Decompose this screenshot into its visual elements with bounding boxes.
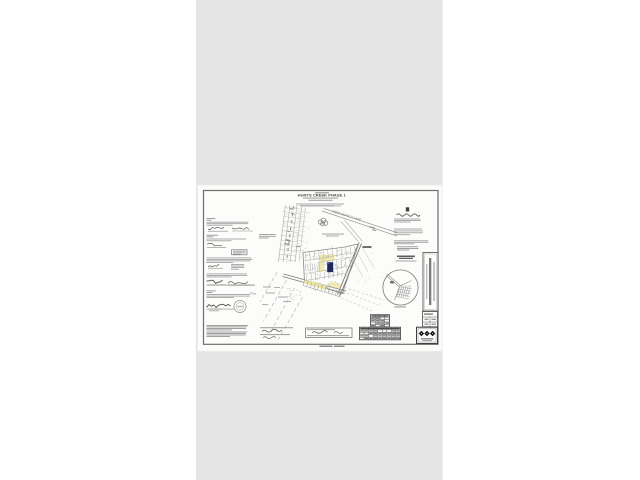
- svg-text:HUNTS CREEK PHASE 1: HUNTS CREEK PHASE 1: [298, 192, 347, 197]
